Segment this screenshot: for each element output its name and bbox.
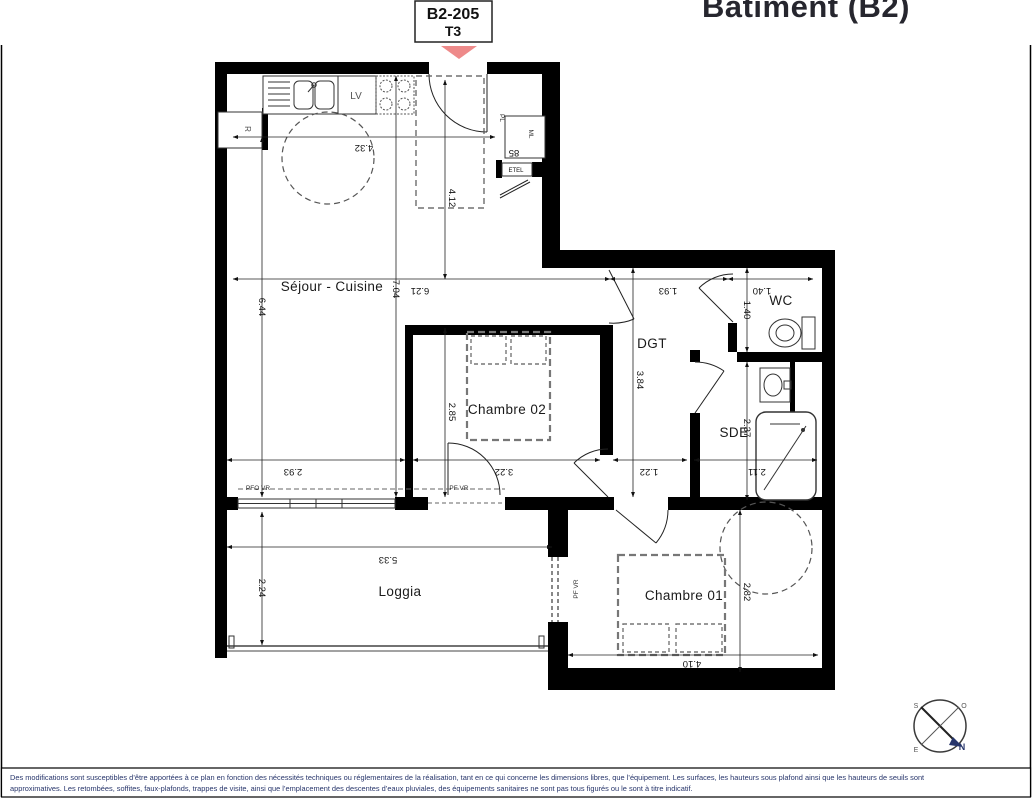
dimension-label: 2.11: [748, 466, 766, 477]
dimension-label: 4.12: [446, 189, 457, 208]
dimension-label: 85: [509, 147, 520, 158]
dishwasher-label: LV: [350, 91, 362, 102]
dimension-label: 4.32: [355, 142, 374, 153]
dimension-label: 2.82: [741, 583, 752, 602]
clearance-circle-chambre01: [720, 502, 812, 594]
compass-letter-e: E: [914, 747, 919, 754]
washer-label: ML: [527, 129, 534, 138]
etel-door: [500, 180, 530, 198]
loggia-railing: [227, 636, 548, 651]
dimension-label: 1.22: [640, 466, 659, 477]
floorplan-page: B2-205 T3 Bâtiment (B2): [0, 0, 1032, 800]
shower: [756, 412, 816, 500]
unit-pointer-triangle-icon: [441, 46, 477, 59]
fridge: [218, 112, 262, 148]
room-label-dgt: DGT: [637, 336, 667, 351]
dimension-label: 2.93: [284, 466, 303, 477]
room-label-loggia: Loggia: [379, 584, 422, 599]
dimension-label: 6.21: [411, 285, 430, 296]
compass-letter-o: O: [961, 703, 967, 710]
chambre01-loggia-window: [552, 557, 558, 622]
compass-letter-s: S: [914, 703, 919, 710]
cooktop: [376, 76, 414, 114]
dimension-label: 1.40: [741, 301, 752, 320]
toilet: [769, 317, 815, 349]
building-title: Bâtiment (B2): [702, 0, 910, 24]
window-pfo-vr-label: PFO VR: [246, 485, 271, 492]
unit-type: T3: [445, 23, 462, 39]
room-label-wc: WC: [769, 293, 792, 308]
window-pf-vr-sejour-label: PF VR: [449, 485, 468, 492]
dimension-label: 1.93: [659, 285, 678, 296]
disclaimer: Des modifications sont susceptibles d’êt…: [2, 768, 1031, 797]
etel-label: ETEL: [508, 168, 524, 174]
floorplan-drawing: B2-205 T3 Bâtiment (B2): [0, 0, 1032, 800]
compass: [914, 700, 966, 752]
room-label-chambre-02: Chambre 02: [468, 402, 546, 417]
kitchen-sink: [263, 76, 338, 114]
dimension-label: 3.22: [495, 466, 514, 477]
room-label-chambre-01: Chambre 01: [645, 588, 723, 603]
dimension-label: 2.85: [446, 403, 457, 422]
room-label-sejour-cuisine: Séjour - Cuisine: [281, 279, 383, 294]
dimension-label: 3.84: [634, 371, 645, 390]
wc-door: [699, 274, 733, 322]
dimension-label: 7.04: [390, 280, 401, 299]
sde-door: [695, 362, 724, 413]
entry-door: [429, 74, 487, 132]
unit-number: B2-205: [427, 6, 480, 23]
closet-label: PL: [498, 114, 505, 122]
window-pf-vr-chambre01-label: PF VR: [573, 579, 580, 598]
fridge-label: R: [243, 126, 252, 132]
clearance-circle-sejour: [282, 112, 374, 204]
disclaimer-line1: Des modifications sont susceptibles d’êt…: [10, 773, 924, 782]
disclaimer-line2: approximatives. Les retombées, soffites,…: [10, 784, 693, 793]
dimension-label: 6.44: [256, 298, 267, 317]
unit-tag: B2-205 T3: [415, 1, 492, 59]
bed-chambre02: [467, 332, 550, 440]
chambre01-door: [616, 510, 668, 543]
chambre02-door: [574, 449, 608, 497]
room-label-sde: SDE: [720, 425, 749, 440]
dimension-label: 5.33: [379, 554, 398, 565]
dimension-label: 4.10: [683, 658, 702, 669]
sejour-dgt-door: [609, 270, 634, 323]
dimension-label: 2.24: [256, 579, 267, 598]
doors: [429, 74, 733, 543]
bed-chambre01: [618, 555, 725, 655]
washbasin: [760, 368, 791, 402]
